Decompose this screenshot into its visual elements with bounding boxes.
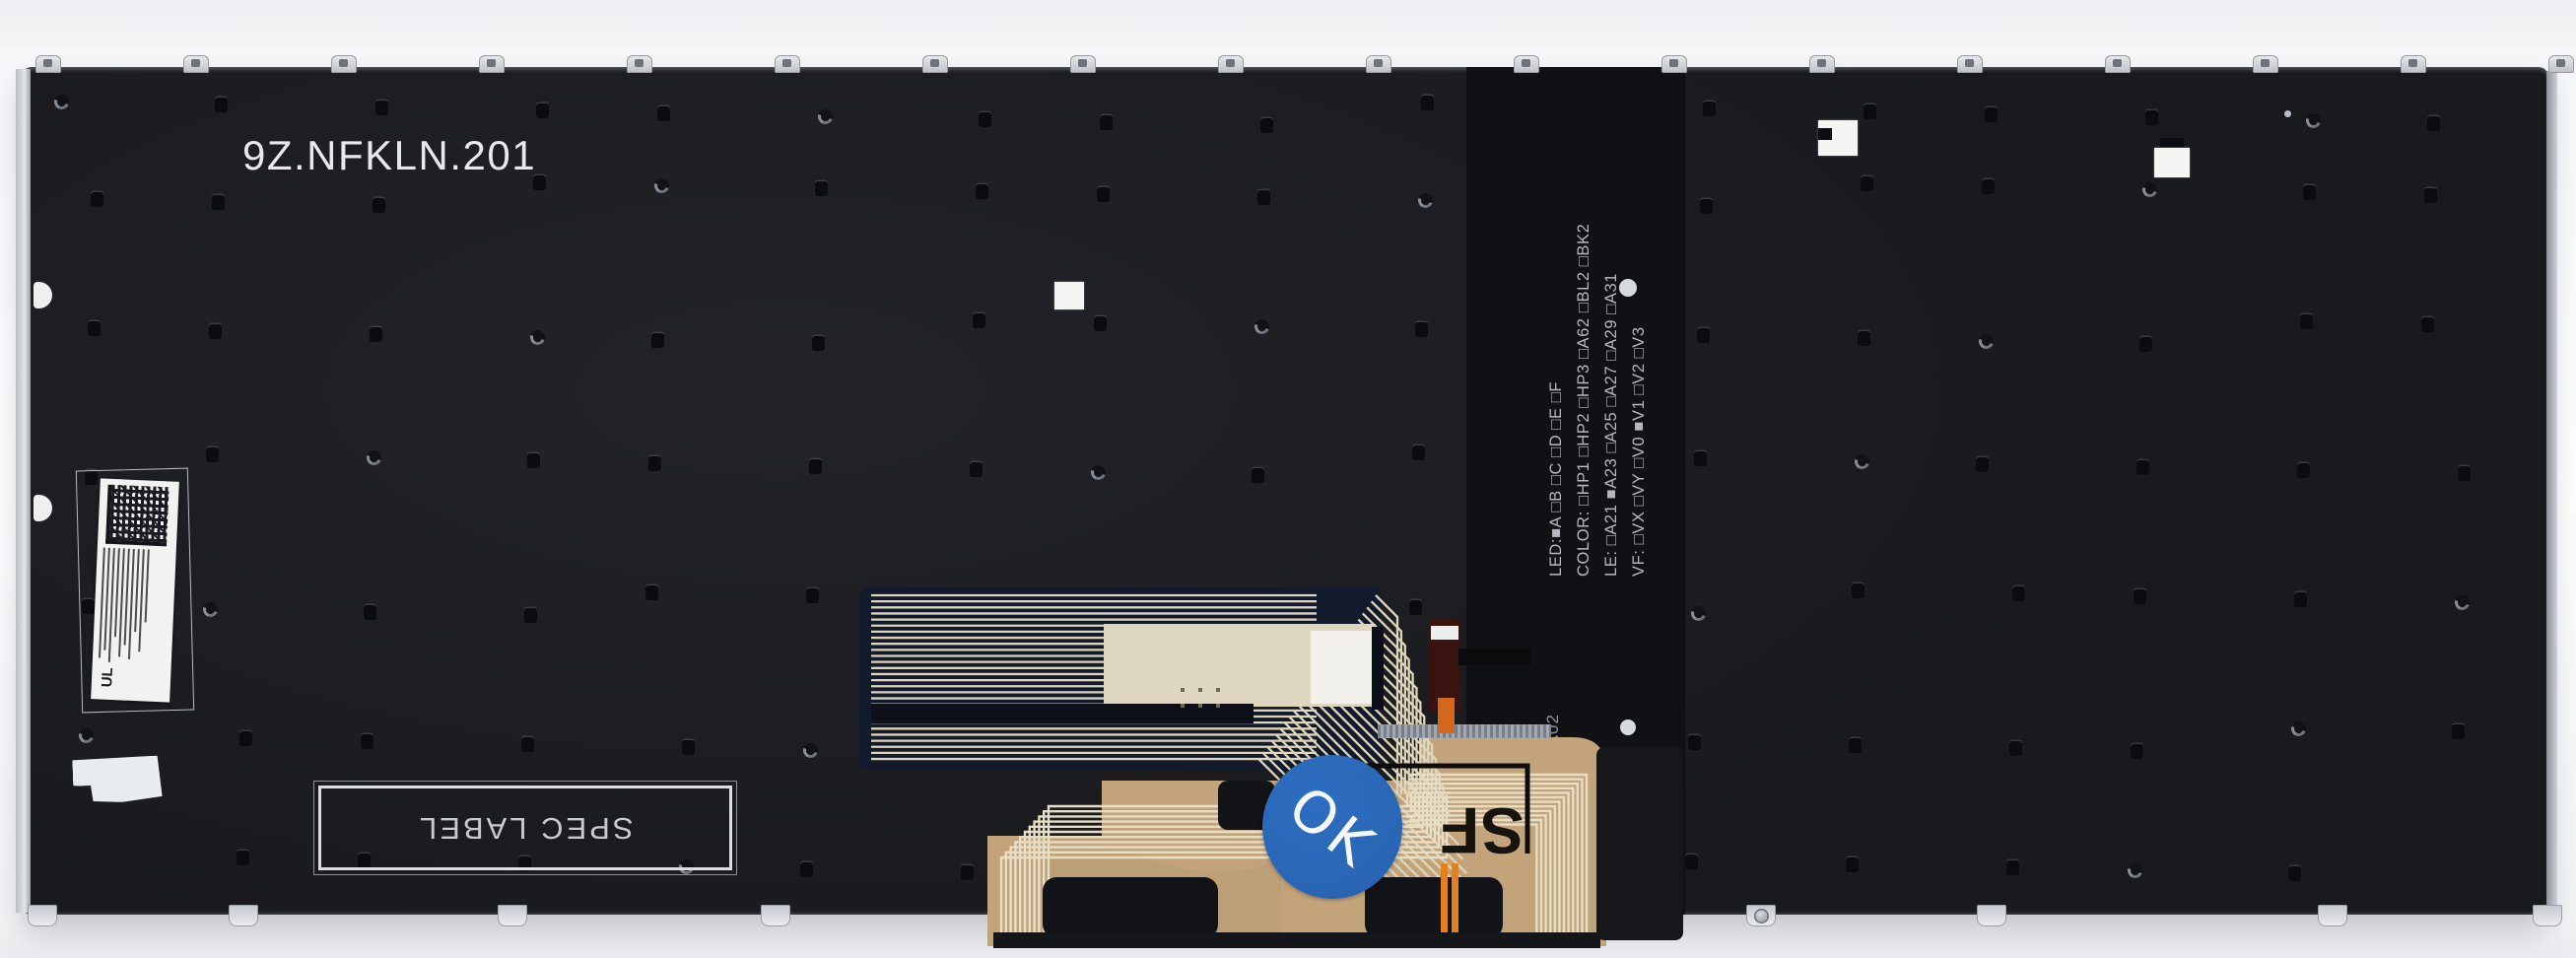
keyhook-cutout: [1257, 190, 1270, 205]
keyhook-cutout: [1976, 457, 1989, 472]
tab-notch: [1078, 59, 1087, 67]
tab-notch: [43, 59, 52, 67]
keyhook-cutout: [212, 195, 225, 210]
keyhook-cutout: [973, 313, 985, 328]
keyhook-cutout: [2134, 589, 2146, 604]
keyhook-cutout: [536, 103, 549, 118]
tab-notch: [1669, 59, 1678, 67]
mounting-tab: [1070, 55, 1096, 73]
keyhook-cutout: [970, 462, 983, 477]
keyhook-cutout: [1852, 583, 1864, 598]
keyhook-cutout: [1694, 451, 1707, 466]
cutout-mark: [2160, 138, 2184, 147]
label-fine-print: [99, 548, 170, 669]
keyhook-cutout: [961, 865, 974, 880]
mounting-tab: [627, 55, 652, 73]
keyhook-cutout: [651, 333, 664, 348]
keyhook-cutout: [364, 605, 376, 620]
mounting-tab: [183, 55, 209, 73]
keyhook-cutout: [976, 184, 988, 199]
mounting-tab: [229, 905, 258, 926]
keyhook-cutout: [657, 106, 670, 121]
tab-notch: [635, 59, 644, 67]
keyboard-back-photo: 9Z.NFKLN.201 UL SPEC LABEL LED:■A □B □C …: [0, 0, 2576, 958]
datamatrix-code: [105, 485, 169, 547]
tab-notch: [782, 59, 791, 67]
keyhook-cutout: [1985, 107, 1998, 122]
mounting-tab: [2105, 55, 2131, 73]
keyhook-cutout: [1260, 118, 1273, 133]
locating-dot: [1620, 719, 1636, 735]
keyhook-cutout: [1412, 445, 1425, 460]
screw-head: [1754, 909, 1769, 924]
mounting-tab: [1218, 55, 1244, 73]
keyhook-cutout: [1249, 597, 1261, 612]
mounting-tab: [922, 55, 948, 73]
mounting-tab: [2318, 905, 2347, 926]
keyhook-cutout: [1700, 199, 1713, 214]
keyhook-cutout: [979, 112, 991, 127]
cable-side-marking: I9085: [1622, 806, 1642, 854]
mounting-tab: [1514, 55, 1539, 73]
keyhook-cutout: [1094, 316, 1107, 331]
keyhook-cutout: [1864, 104, 1876, 119]
cable-shape: [993, 932, 1600, 948]
keyhook-cutout: [2300, 314, 2313, 329]
keyhook-cutout: [2458, 466, 2471, 481]
tab-notch: [2408, 59, 2417, 67]
keyhook-cutout: [91, 192, 103, 207]
keyhook-cutout: [645, 585, 658, 600]
keyhook-cutout: [370, 327, 382, 342]
keyhook-cutout: [815, 181, 828, 196]
keyhook-cutout: [682, 740, 695, 755]
keyhook-cutout: [1703, 102, 1716, 116]
tab-notch: [1374, 59, 1383, 67]
keyhook-cutout: [806, 588, 819, 603]
keyhook-cutout: [2303, 185, 2316, 200]
keyhook-cutout: [1252, 468, 1264, 483]
ok-qc-sticker: OK: [1262, 755, 1402, 899]
keyhook-cutout: [2427, 116, 2440, 131]
tab-notch: [2113, 59, 2122, 67]
keyhook-cutout: [1858, 331, 1870, 346]
barcode-label: UL: [91, 478, 179, 702]
mounting-tab: [1809, 55, 1835, 73]
keyhook-cutout: [1685, 855, 1698, 869]
keyhook-cutout: [1097, 187, 1110, 202]
keyhook-cutout: [1688, 735, 1701, 750]
keyhook-cutout: [1846, 857, 1859, 872]
spec-label-box: SPEC LABEL: [313, 781, 737, 875]
mounting-tab: [1957, 55, 1983, 73]
keyhook-cutout: [524, 608, 537, 623]
tab-notch: [2261, 59, 2270, 67]
tab-notch: [2556, 59, 2565, 67]
keyhook-cutout: [1127, 594, 1140, 609]
mounting-tab: [1977, 905, 2006, 926]
keyhook-cutout: [812, 336, 825, 351]
keyhook-cutout: [2288, 866, 2301, 881]
keyhook-cutout: [1415, 322, 1428, 337]
keyhook-cutout: [1406, 729, 1419, 744]
mounting-tab: [761, 905, 790, 926]
mounting-tab: [1059, 905, 1089, 926]
mounting-tab: [2253, 55, 2278, 73]
mounting-tab: [2401, 55, 2426, 73]
keyhook-cutout: [361, 734, 373, 749]
keyhook-cutout: [206, 447, 219, 462]
cutout-square: [2154, 148, 2190, 177]
mounting-tab: [331, 55, 357, 73]
mounting-tab: [479, 55, 505, 73]
keyhook-cutout: [2012, 586, 2025, 601]
sf-marking: SF: [1423, 787, 1539, 875]
mounting-tab: [498, 905, 527, 926]
keyhook-cutout: [521, 737, 534, 752]
keyhook-cutout: [1409, 600, 1422, 615]
keyhook-cutout: [648, 456, 661, 471]
keyhook-cutout: [2139, 337, 2152, 352]
tab-notch: [1817, 59, 1826, 67]
locating-dot: [2284, 110, 2291, 117]
plate-right-edge: [2546, 71, 2557, 911]
keyhook-cutout: [2006, 860, 2019, 875]
mounting-tab: [775, 55, 800, 73]
keyhook-cutout: [1246, 726, 1258, 741]
keyhook-cutout: [2424, 188, 2437, 203]
keyhook-cutout: [1100, 115, 1113, 130]
screw-head: [1439, 909, 1454, 924]
keyhook-cutout: [237, 851, 249, 865]
keyhook-cutout: [1861, 176, 1873, 191]
keyhook-cutout: [2009, 741, 2022, 756]
tab-notch: [1522, 59, 1530, 67]
keyhook-cutout: [964, 746, 977, 761]
tab-notch: [191, 59, 200, 67]
locating-dot: [1619, 279, 1637, 297]
keyhook-cutout: [527, 453, 540, 468]
cutout-square: [1054, 282, 1084, 309]
cutout-mark: [1818, 128, 1832, 140]
fine-print-line: [138, 549, 145, 651]
part-number-text: 9Z.NFKLN.201: [242, 132, 536, 179]
keyhook-cutout: [2131, 744, 2143, 759]
tab-notch: [1226, 59, 1235, 67]
keyhook-cutout: [373, 198, 385, 213]
tab-notch: [930, 59, 939, 67]
tab-notch: [339, 59, 348, 67]
spec-label-text: SPEC LABEL: [417, 810, 634, 846]
backlight-spec-line-vf: VF: □VX □VY □V0 ■V1 □V2 □V3: [1630, 326, 1649, 577]
mounting-tab: [1661, 55, 1687, 73]
mounting-tab: [1431, 905, 1460, 926]
tab-notch: [1965, 59, 1974, 67]
keyhook-cutout: [1849, 738, 1862, 753]
ok-sticker-text: OK: [1276, 773, 1389, 881]
revision-marking: -A02: [1543, 714, 1563, 753]
keyhook-cutout: [809, 459, 822, 474]
fine-print-line: [145, 550, 150, 623]
mounting-tab: [1746, 905, 1776, 926]
keyhook-cutout: [2452, 724, 2465, 739]
keyhook-cutout: [375, 101, 388, 115]
ul-logo: UL: [99, 667, 116, 688]
mounting-tab: [2533, 905, 2562, 926]
backlight-spec-line-color: COLOR: □HP1 □HP2 □HP3 □A62 □BL2 □BK2: [1575, 224, 1593, 577]
tab-notch: [487, 59, 496, 67]
backlight-spec-line-le: LE: □A21 ■A23 □A25 □A27 □A29 □A31: [1602, 273, 1621, 577]
keyhook-cutout: [239, 731, 252, 746]
keyhook-cutout: [1697, 328, 1710, 343]
keyhook-cutout: [2294, 592, 2307, 607]
keyhook-cutout: [2136, 460, 2149, 475]
keyhook-cutout: [209, 324, 222, 339]
screw-head: [1067, 909, 1082, 924]
keyhook-cutout: [1421, 96, 1434, 110]
keyhook-cutout: [1124, 723, 1137, 738]
mounting-tab: [28, 905, 57, 926]
keyhook-cutout: [2421, 317, 2434, 332]
keyhook-cutout: [215, 98, 228, 112]
keyhook-cutout: [800, 862, 813, 877]
mounting-tab: [1366, 55, 1391, 73]
backlight-spec-line-led: LED:■A □B □C □D □E □F: [1547, 381, 1566, 577]
keyhook-cutout: [1982, 179, 1995, 194]
keyhook-cutout: [88, 321, 101, 336]
keyhook-cutout: [2297, 463, 2310, 478]
mounting-tab: [35, 55, 61, 73]
mounting-tab: [2548, 55, 2574, 73]
plate-left-edge: [16, 69, 31, 913]
cable-side-marking: 94VTM-0W: [1603, 775, 1620, 857]
keyhook-cutout: [2145, 110, 2158, 125]
